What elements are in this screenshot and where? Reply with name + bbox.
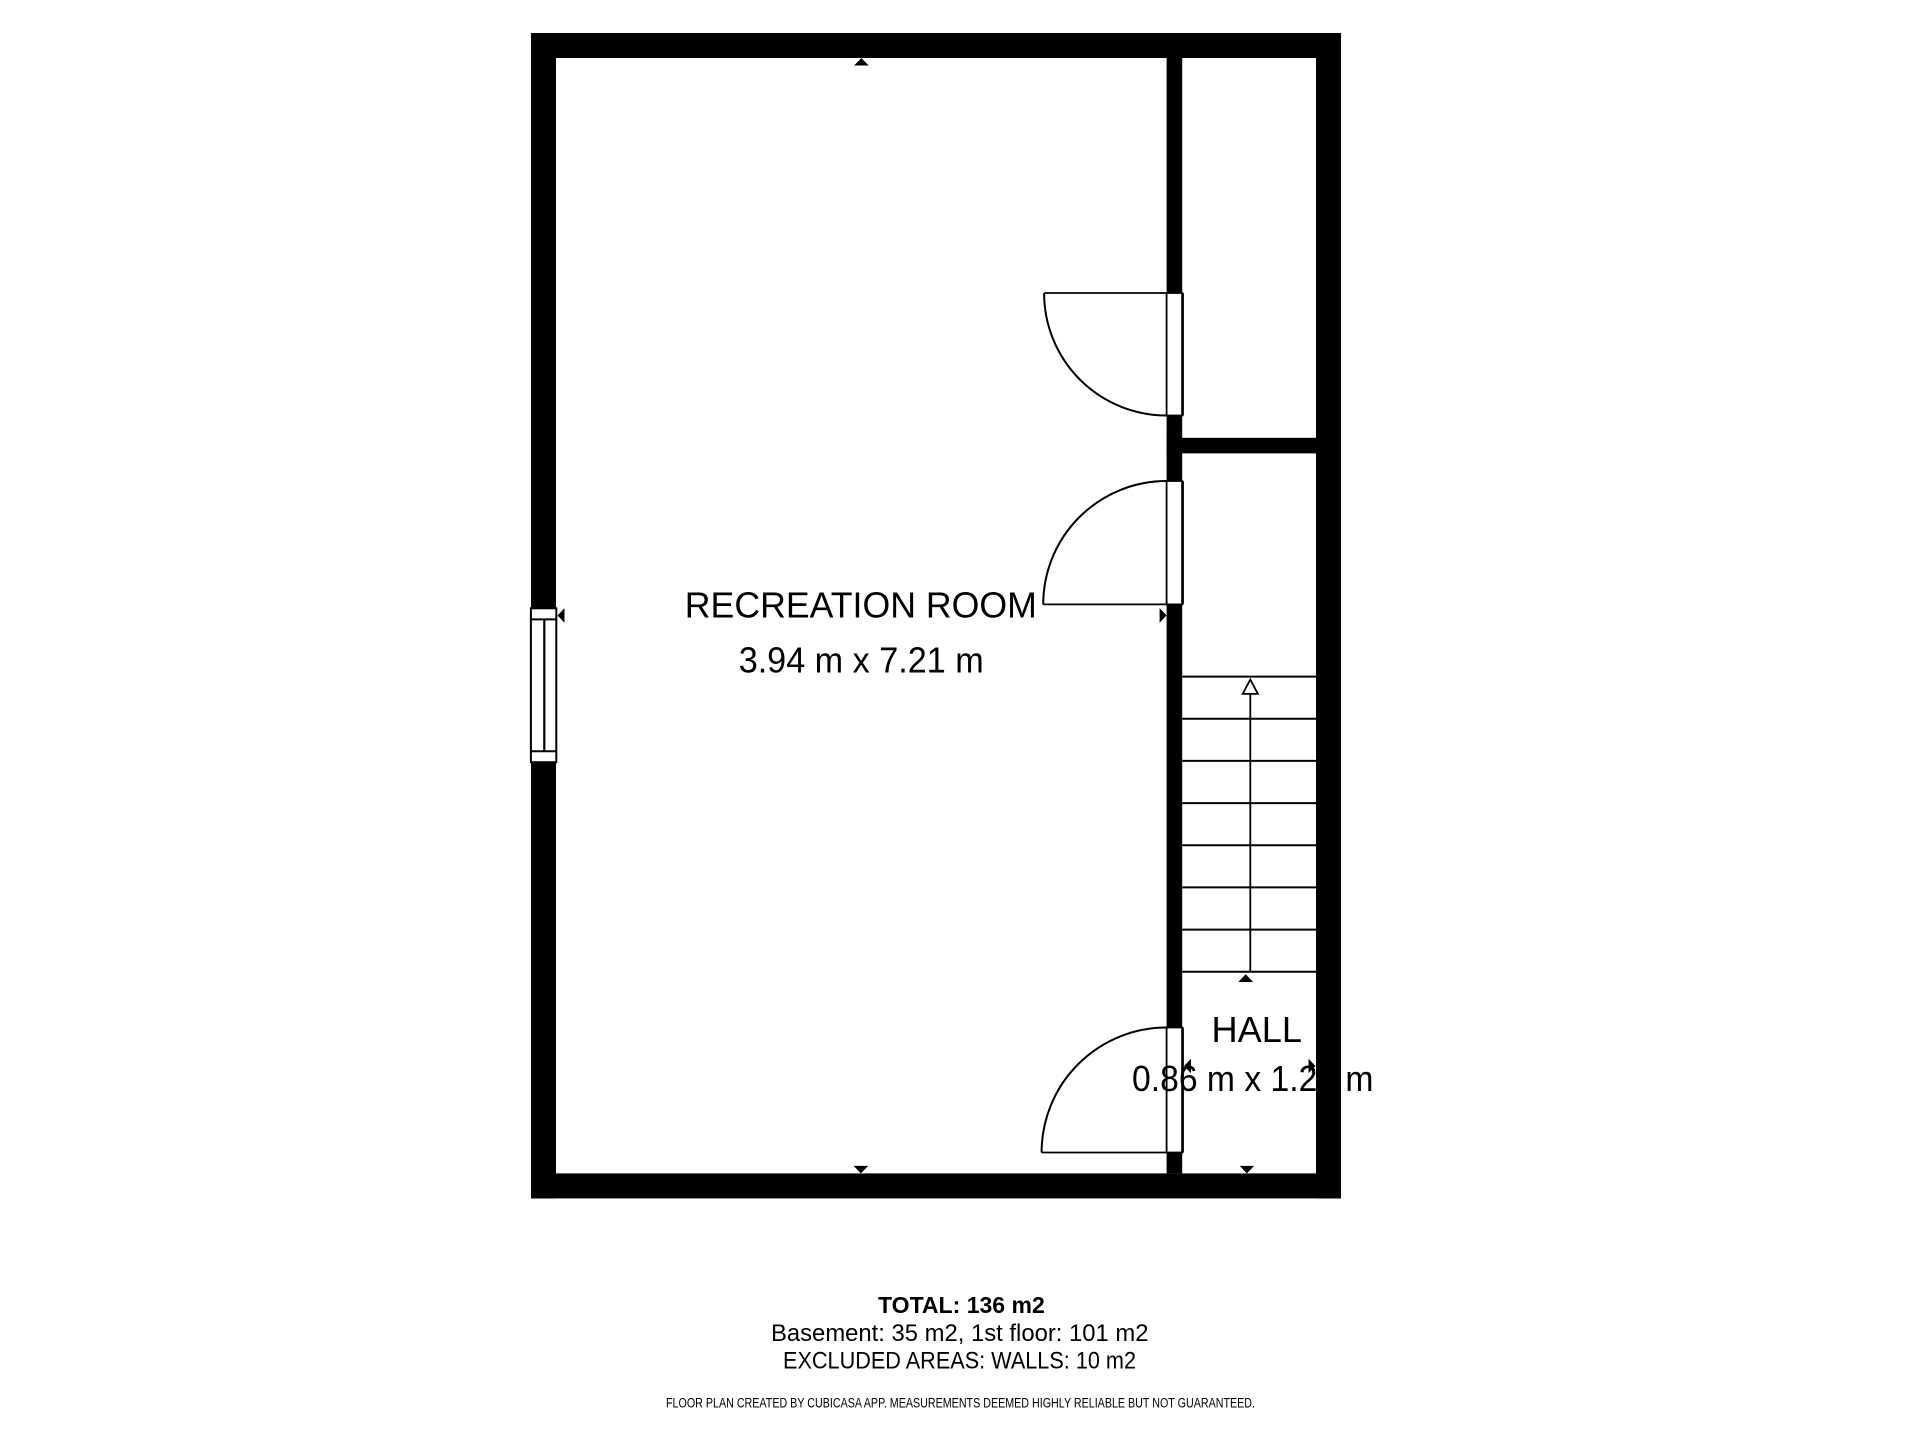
svg-text:EXCLUDED AREAS: WALLS: 10 m2: EXCLUDED AREAS: WALLS: 10 m2 xyxy=(783,1347,1136,1374)
svg-text:HALL: HALL xyxy=(1212,1009,1303,1050)
svg-text:RECREATION ROOM: RECREATION ROOM xyxy=(685,585,1037,626)
svg-text:3.94 m x 7.21 m: 3.94 m x 7.21 m xyxy=(739,640,984,681)
svg-text:FLOOR PLAN CREATED BY CUBICASA: FLOOR PLAN CREATED BY CUBICASA APP. MEAS… xyxy=(666,1395,1255,1410)
svg-text:Basement: 35 m2, 1st floor: 10: Basement: 35 m2, 1st floor: 101 m2 xyxy=(771,1320,1149,1347)
svg-text:TOTAL: 136 m2: TOTAL: 136 m2 xyxy=(878,1292,1045,1318)
